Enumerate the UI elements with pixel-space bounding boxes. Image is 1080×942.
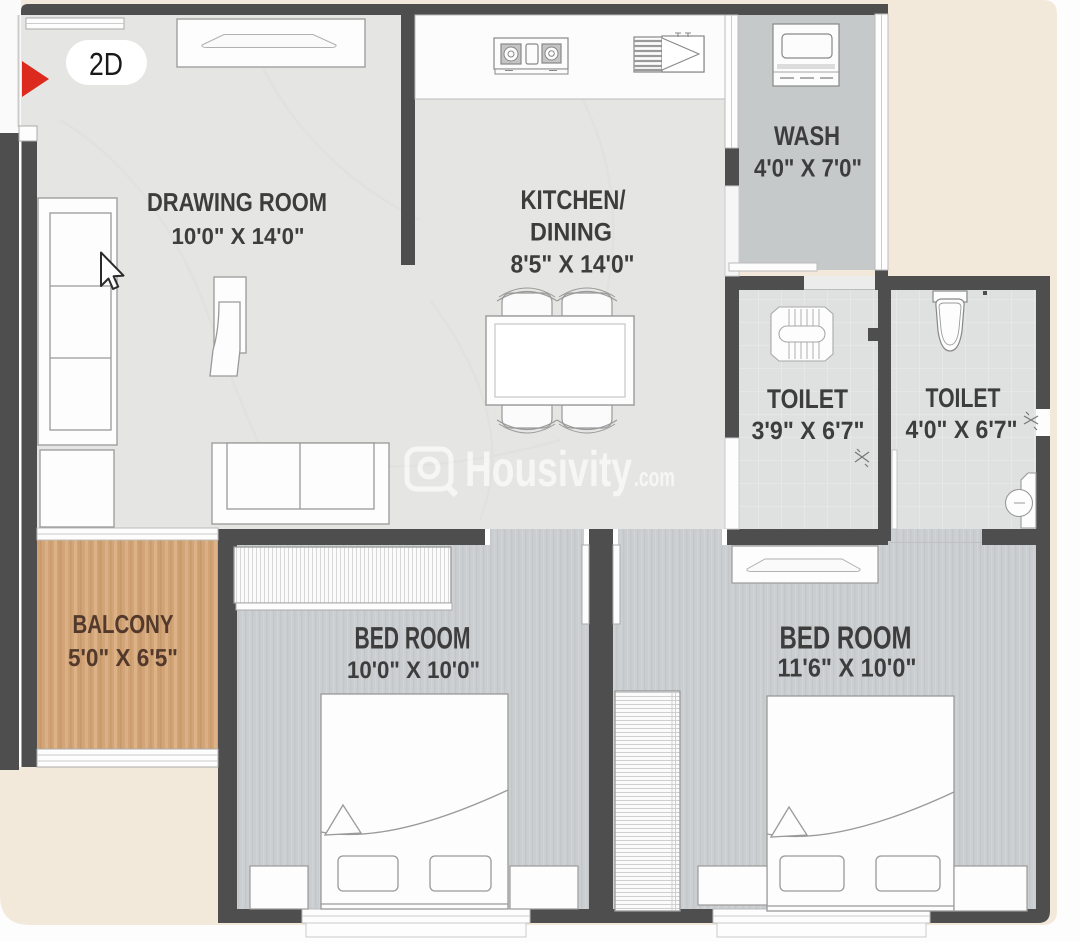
svg-text:10'0" X 10'0": 10'0" X 10'0" <box>347 657 480 684</box>
svg-text:DINING: DINING <box>530 219 612 247</box>
svg-text:10'0" X 14'0": 10'0" X 14'0" <box>172 223 305 249</box>
svg-text:4'0" X 7'0": 4'0" X 7'0" <box>754 155 862 183</box>
svg-text:TOILET: TOILET <box>767 384 848 414</box>
svg-text:Housivity: Housivity <box>465 441 632 497</box>
svg-text:WASH: WASH <box>774 121 840 151</box>
svg-text:.com: .com <box>634 462 675 492</box>
svg-text:4'0" X 6'7": 4'0" X 6'7" <box>906 416 1018 444</box>
svg-text:5'0" X 6'5": 5'0" X 6'5" <box>68 645 178 672</box>
svg-text:KITCHEN/: KITCHEN/ <box>521 185 626 215</box>
svg-text:BED ROOM: BED ROOM <box>780 620 912 656</box>
svg-text:DRAWING ROOM: DRAWING ROOM <box>147 187 327 217</box>
svg-text:BED ROOM: BED ROOM <box>355 621 471 656</box>
svg-text:8'5" X 14'0": 8'5" X 14'0" <box>511 251 635 279</box>
svg-text:BALCONY: BALCONY <box>73 609 174 639</box>
svg-text:2D: 2D <box>89 46 123 82</box>
svg-text:11'6" X 10'0": 11'6" X 10'0" <box>778 653 917 683</box>
svg-text:3'9" X 6'7": 3'9" X 6'7" <box>752 417 865 445</box>
svg-text:TOILET: TOILET <box>926 383 1001 413</box>
